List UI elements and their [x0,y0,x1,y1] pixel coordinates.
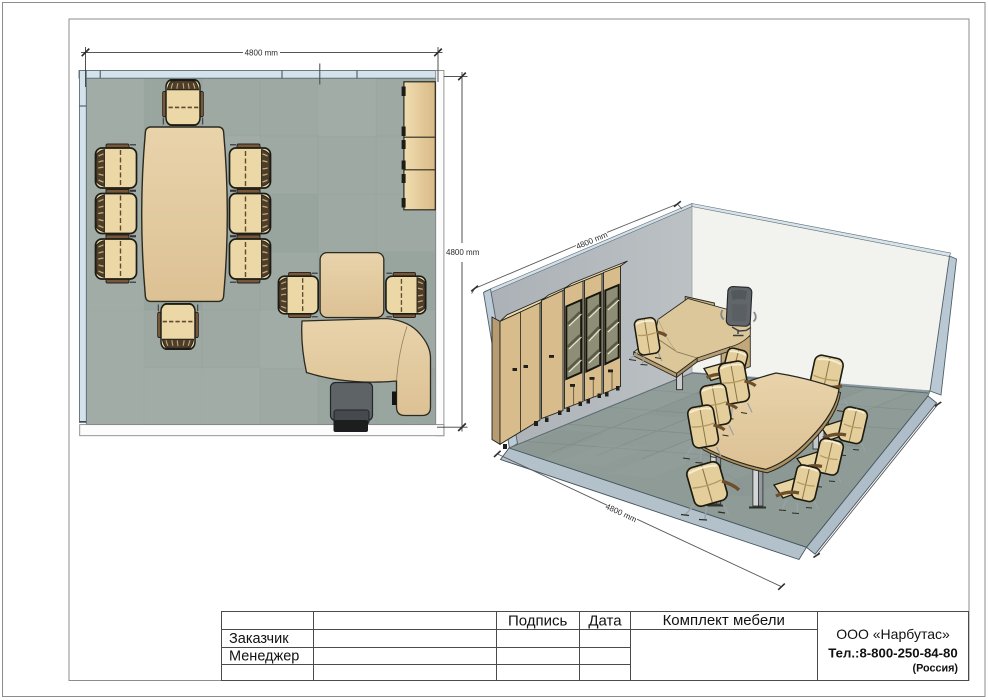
svg-text:(Россия): (Россия) [912,663,958,675]
svg-text:Дата: Дата [588,613,622,630]
svg-text:Тел.:8-800-250-84-80: Тел.:8-800-250-84-80 [828,646,957,661]
svg-text:4800 mm: 4800 mm [245,48,279,57]
svg-text:Заказчик: Заказчик [229,631,289,647]
svg-text:Подпись: Подпись [508,613,568,630]
svg-text:Комплект мебели: Комплект мебели [663,612,785,629]
svg-text:ООО «Нарбутас»: ООО «Нарбутас» [836,626,950,642]
svg-text:Менеджер: Менеджер [229,649,299,665]
svg-text:4800 mm: 4800 mm [446,248,480,257]
